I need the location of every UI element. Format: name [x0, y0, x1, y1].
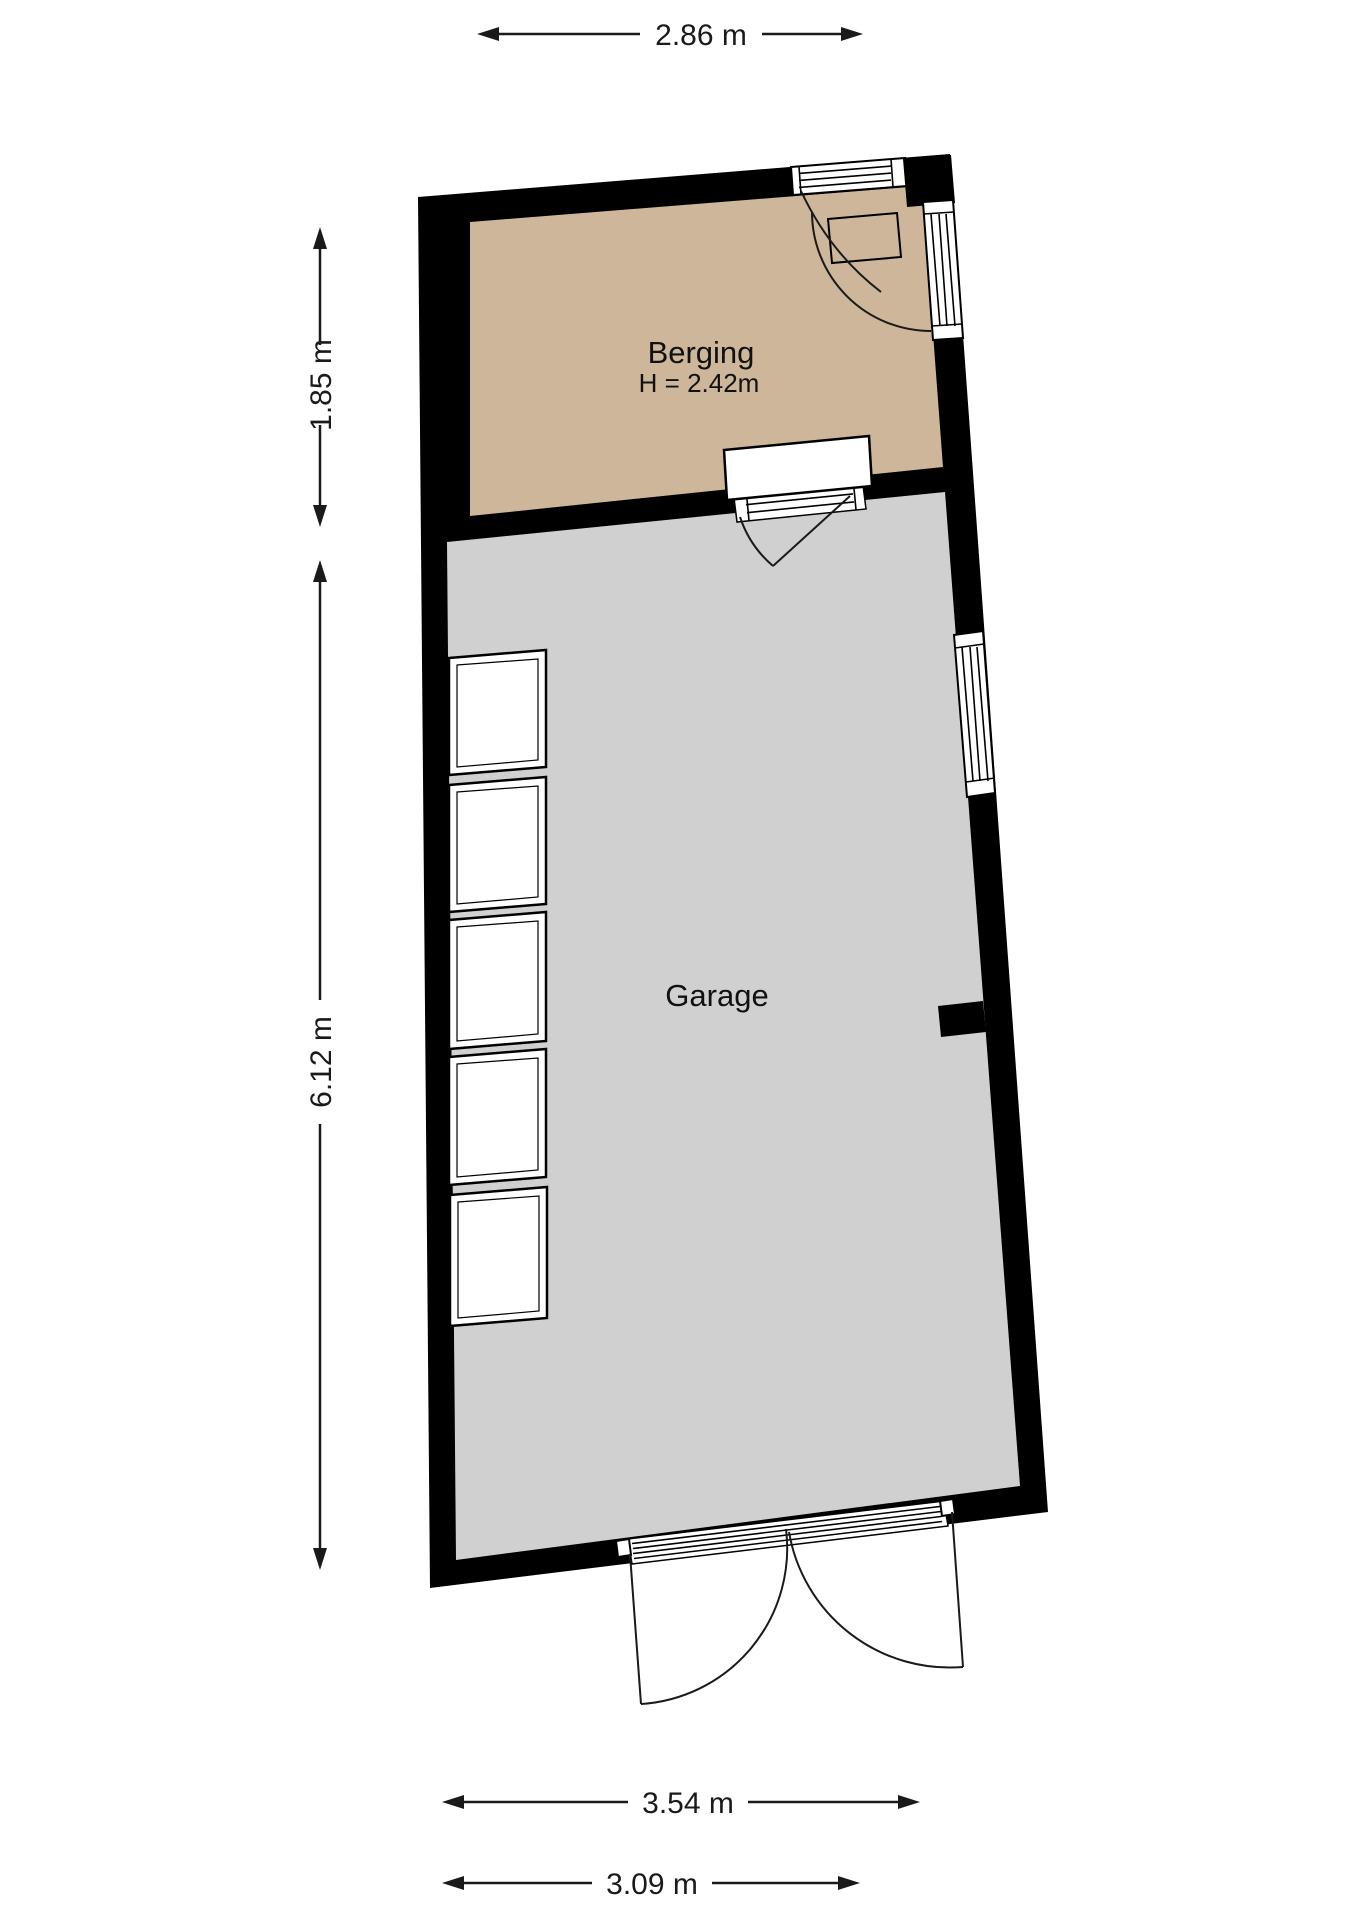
corner-wall-block — [903, 155, 955, 207]
left-window-3 — [449, 912, 546, 1049]
left-window-4 — [449, 1049, 546, 1185]
left-window-5 — [450, 1187, 547, 1326]
dim-top-label: 2.86 m — [655, 19, 747, 52]
garage-door-right-leaf — [952, 1512, 963, 1667]
dim-left-upper: 1.85 m — [305, 227, 338, 527]
garage-door-cap-left — [616, 1539, 631, 1557]
left-window-2 — [449, 777, 546, 912]
dim-left-lower-label: 6.12 m — [305, 1016, 338, 1108]
garage-label: Garage — [665, 978, 768, 1013]
garage-door-right-swing-arc — [789, 1532, 963, 1668]
dim-bottom-upper-label: 3.54 m — [642, 1787, 734, 1820]
dim-bottom-lower: 3.09 m — [442, 1868, 860, 1901]
dim-bottom-upper: 3.54 m — [442, 1787, 920, 1820]
dim-left-upper-label: 1.85 m — [305, 339, 338, 431]
dim-top: 2.86 m — [477, 19, 863, 52]
wall-stub — [938, 1001, 986, 1037]
left-window-1 — [449, 650, 546, 775]
berging-height-label: H = 2.42m — [639, 368, 760, 398]
floor-plan-canvas: Berging H = 2.42m Garage 2.86 m 1.85 m 6… — [0, 0, 1358, 1920]
garage-door-left-leaf — [630, 1554, 641, 1704]
dim-left-lower: 6.12 m — [305, 560, 338, 1570]
dim-bottom-lower-label: 3.09 m — [606, 1868, 698, 1901]
berging-label: Berging — [648, 335, 755, 370]
